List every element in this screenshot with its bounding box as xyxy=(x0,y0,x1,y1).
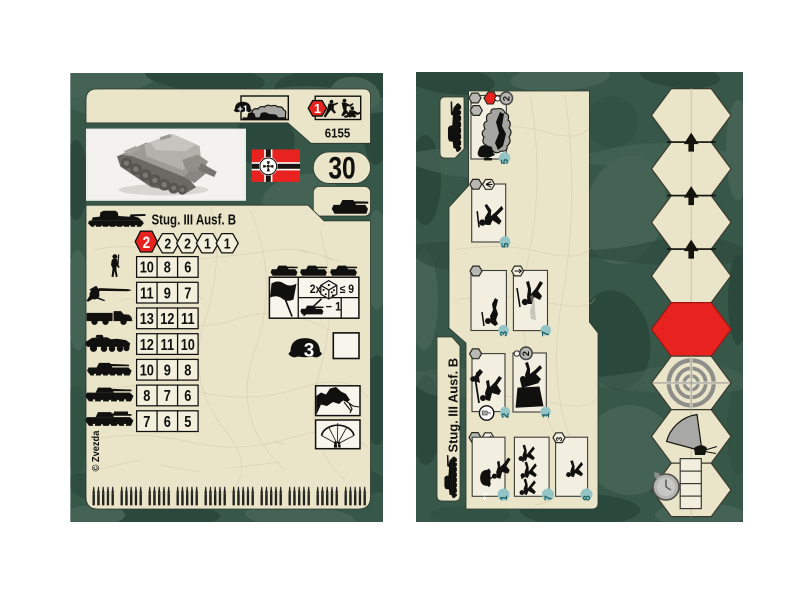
svg-text:≤ 9: ≤ 9 xyxy=(340,283,354,296)
svg-text:8: 8 xyxy=(164,259,171,277)
svg-text:1: 1 xyxy=(499,495,510,501)
svg-text:10: 10 xyxy=(181,337,195,355)
svg-text:2: 2 xyxy=(521,351,532,356)
svg-text:1: 1 xyxy=(314,102,321,116)
svg-text:1: 1 xyxy=(224,235,231,251)
svg-text:Stug. III Ausf. B: Stug. III Ausf. B xyxy=(152,211,237,228)
svg-text:Stug. III Ausf. B: Stug. III Ausf. B xyxy=(447,358,461,453)
svg-text:2: 2 xyxy=(500,412,511,418)
svg-text:6: 6 xyxy=(184,259,191,277)
svg-text:3: 3 xyxy=(554,437,564,442)
svg-text:12: 12 xyxy=(160,311,174,329)
svg-text:3: 3 xyxy=(304,341,315,362)
svg-text:11: 11 xyxy=(140,285,154,303)
svg-text:12: 12 xyxy=(140,337,154,355)
svg-text:5: 5 xyxy=(500,242,511,248)
svg-text:9: 9 xyxy=(164,362,171,380)
svg-text:2x: 2x xyxy=(310,283,322,296)
svg-text:7: 7 xyxy=(543,495,554,501)
svg-text:8: 8 xyxy=(184,362,191,380)
svg-text:7: 7 xyxy=(541,331,552,337)
svg-text:7: 7 xyxy=(184,285,191,303)
svg-text:2: 2 xyxy=(164,235,171,251)
svg-text:6155: 6155 xyxy=(325,126,351,141)
svg-text:1: 1 xyxy=(204,235,211,251)
svg-text:9: 9 xyxy=(164,285,171,303)
svg-text:10: 10 xyxy=(140,259,154,277)
svg-text:5: 5 xyxy=(184,414,191,432)
svg-text:7: 7 xyxy=(164,388,171,406)
svg-text:2: 2 xyxy=(143,234,151,253)
svg-text:8: 8 xyxy=(582,495,593,501)
svg-text:7: 7 xyxy=(143,414,150,432)
svg-text:11: 11 xyxy=(161,337,175,355)
svg-text:10: 10 xyxy=(140,362,154,380)
svg-text:6: 6 xyxy=(184,388,191,406)
svg-text:5: 5 xyxy=(500,158,511,164)
svg-text:− 1: − 1 xyxy=(326,301,342,314)
svg-text:2: 2 xyxy=(184,235,191,251)
svg-text:8: 8 xyxy=(143,388,150,406)
svg-text:+1: +1 xyxy=(237,104,248,116)
svg-text:1: 1 xyxy=(541,412,552,418)
svg-text:3: 3 xyxy=(499,331,510,337)
svg-text:30: 30 xyxy=(328,150,355,186)
svg-text:© Zvezda: © Zvezda xyxy=(90,430,102,471)
svg-text:2: 2 xyxy=(502,96,513,101)
svg-text:+1: +1 xyxy=(480,492,489,501)
svg-text:6: 6 xyxy=(164,414,171,432)
svg-text:11: 11 xyxy=(181,311,195,329)
svg-text:13: 13 xyxy=(140,311,154,329)
